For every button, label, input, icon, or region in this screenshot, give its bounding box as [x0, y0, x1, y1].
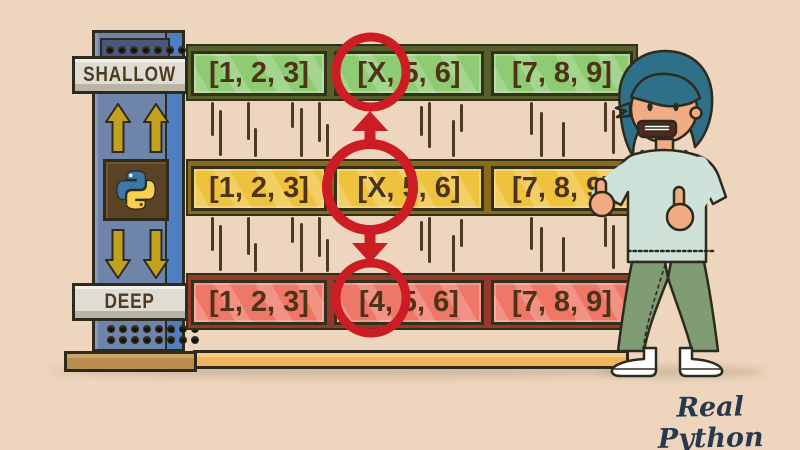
connector-line — [428, 102, 431, 148]
connector-line — [254, 128, 257, 157]
character-fringe — [631, 74, 700, 106]
character-mouth — [638, 121, 676, 137]
wooden-base-plank — [193, 350, 629, 369]
character-right-leg — [668, 262, 718, 351]
character-face — [631, 76, 697, 142]
connector-line — [254, 243, 257, 272]
list-cell-text: [7, 8, 9] — [512, 286, 612, 319]
connector-line — [460, 219, 463, 247]
shallow-sign: SHALLOW — [72, 56, 188, 94]
list-cell: [7, 8, 9] — [491, 51, 633, 96]
character-right-fist — [667, 204, 693, 230]
pants-seam — [643, 265, 665, 349]
list-cell-text: [X, 5, 6] — [357, 57, 460, 90]
list-cell: [1, 2, 3] — [191, 166, 327, 211]
connector-line — [562, 237, 565, 272]
up-arrows — [105, 103, 169, 153]
connector-line — [211, 217, 214, 251]
connector-line — [326, 239, 329, 272]
character-right-arm — [690, 165, 705, 209]
list-cell-text: [1, 2, 3] — [209, 172, 309, 205]
connector-line — [420, 106, 423, 136]
connector-line — [612, 225, 615, 269]
arrow-up-annotation — [352, 111, 388, 148]
connector-line — [211, 102, 214, 136]
connector-line — [452, 235, 455, 272]
list-cell-highlighted: [X, 5, 6] — [334, 166, 484, 211]
character-hair-spike — [616, 103, 630, 117]
real-python-logo: Real Python — [627, 391, 793, 450]
connector-line — [291, 217, 294, 243]
up-arrow-icon — [105, 103, 131, 153]
connector-line — [326, 124, 329, 157]
original-list-row: [1, 2, 3] [X, 5, 6] [7, 8, 9] — [186, 159, 638, 216]
down-arrow-icon — [105, 229, 131, 279]
connector-line — [219, 225, 222, 271]
connector-line — [604, 102, 607, 132]
list-cell: [1, 2, 3] — [191, 280, 327, 325]
connector-line — [247, 217, 250, 255]
list-cell: [7, 8, 9] — [491, 280, 633, 325]
character-collar — [635, 151, 693, 176]
python-logo-icon — [113, 167, 159, 213]
connector-line — [300, 108, 303, 157]
connector-line — [460, 104, 463, 132]
list-cell-text: [1, 2, 3] — [209, 57, 309, 90]
connector-line — [530, 102, 533, 135]
shallow-sign-label: SHALLOW — [84, 63, 177, 87]
connector-line — [530, 217, 533, 250]
connector-line — [452, 120, 455, 157]
character-teeth — [644, 125, 670, 131]
character-neck — [656, 139, 673, 152]
arrow-down-annotation — [352, 229, 388, 263]
list-cell-highlighted: [4, 5, 6] — [334, 280, 484, 325]
list-cell: [7, 8, 9] — [491, 166, 633, 211]
list-cell-text: [7, 8, 9] — [512, 172, 612, 205]
shallow-copy-row: [1, 2, 3] [X, 5, 6] [7, 8, 9] — [186, 44, 638, 101]
tower-vent-bottom-grill — [103, 321, 169, 347]
down-arrows — [105, 229, 169, 279]
list-cell-text: [X, 5, 6] — [357, 172, 460, 205]
character-ear — [691, 108, 702, 119]
connector-line — [219, 110, 222, 156]
list-cell: [1, 2, 3] — [191, 51, 327, 96]
deep-sign-label: DEEP — [105, 290, 155, 314]
python-logo-box — [103, 159, 169, 221]
connector-line — [318, 217, 321, 257]
connector-line — [291, 102, 294, 128]
connector-line — [562, 122, 565, 157]
connector-line — [540, 112, 543, 157]
connector-line — [247, 102, 250, 140]
tower-base-plank — [64, 351, 197, 372]
connector-line — [428, 217, 431, 263]
down-arrow-icon — [143, 229, 169, 279]
connector-line — [604, 217, 607, 247]
connector-line — [540, 227, 543, 272]
character-right-thumb — [674, 187, 684, 209]
illustration-canvas: SHALLOW DEEP [1, 2, 3] [X, 5, 6] [7, 8, … — [0, 0, 800, 450]
connector-line — [420, 221, 423, 251]
up-arrow-icon — [143, 103, 169, 153]
character-eye — [673, 103, 678, 111]
deep-copy-row: [1, 2, 3] [4, 5, 6] [7, 8, 9] — [186, 273, 638, 330]
connector-line — [318, 102, 321, 142]
list-cell-text: [4, 5, 6] — [359, 286, 459, 319]
character-eye — [647, 103, 652, 111]
deep-sign: DEEP — [72, 283, 188, 321]
list-cell-text: [1, 2, 3] — [209, 286, 309, 319]
connector-line — [300, 223, 303, 272]
list-cell-text: [7, 8, 9] — [512, 57, 612, 90]
connector-line — [612, 110, 615, 154]
list-cell-highlighted: [X, 5, 6] — [334, 51, 484, 96]
